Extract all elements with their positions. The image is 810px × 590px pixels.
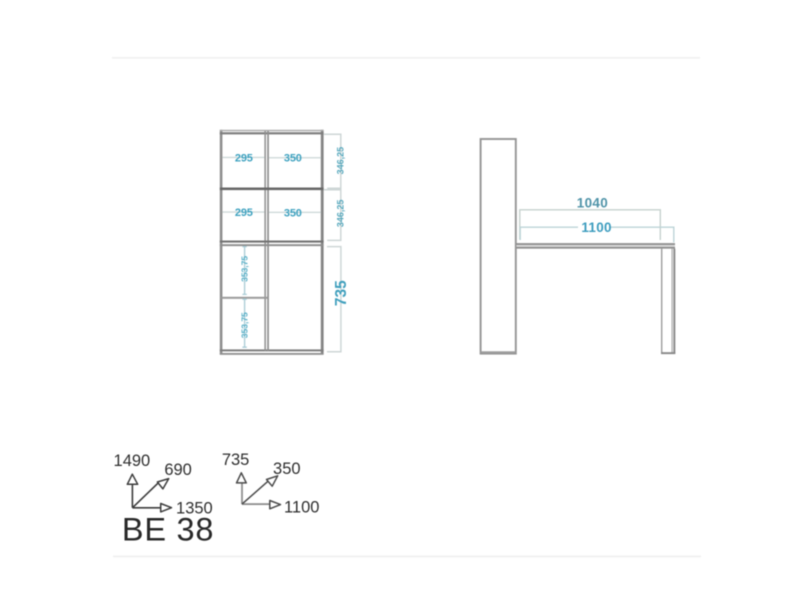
svg-text:1490: 1490 (114, 452, 151, 470)
svg-text:346,25: 346,25 (336, 200, 346, 228)
svg-text:735: 735 (222, 451, 250, 469)
svg-text:295: 295 (235, 207, 253, 219)
svg-text:1100: 1100 (581, 220, 612, 235)
svg-text:1100: 1100 (284, 498, 319, 516)
svg-text:295: 295 (235, 152, 253, 164)
svg-text:350: 350 (284, 153, 302, 165)
svg-text:BE 38: BE 38 (122, 511, 214, 547)
svg-text:346,25: 346,25 (335, 147, 345, 175)
svg-text:353,75: 353,75 (240, 312, 250, 338)
svg-text:735: 735 (333, 280, 350, 306)
svg-text:690: 690 (164, 461, 192, 479)
svg-text:350: 350 (284, 207, 302, 219)
svg-text:353,75: 353,75 (240, 256, 250, 282)
svg-text:350: 350 (273, 460, 301, 478)
svg-text:1040: 1040 (577, 196, 608, 211)
